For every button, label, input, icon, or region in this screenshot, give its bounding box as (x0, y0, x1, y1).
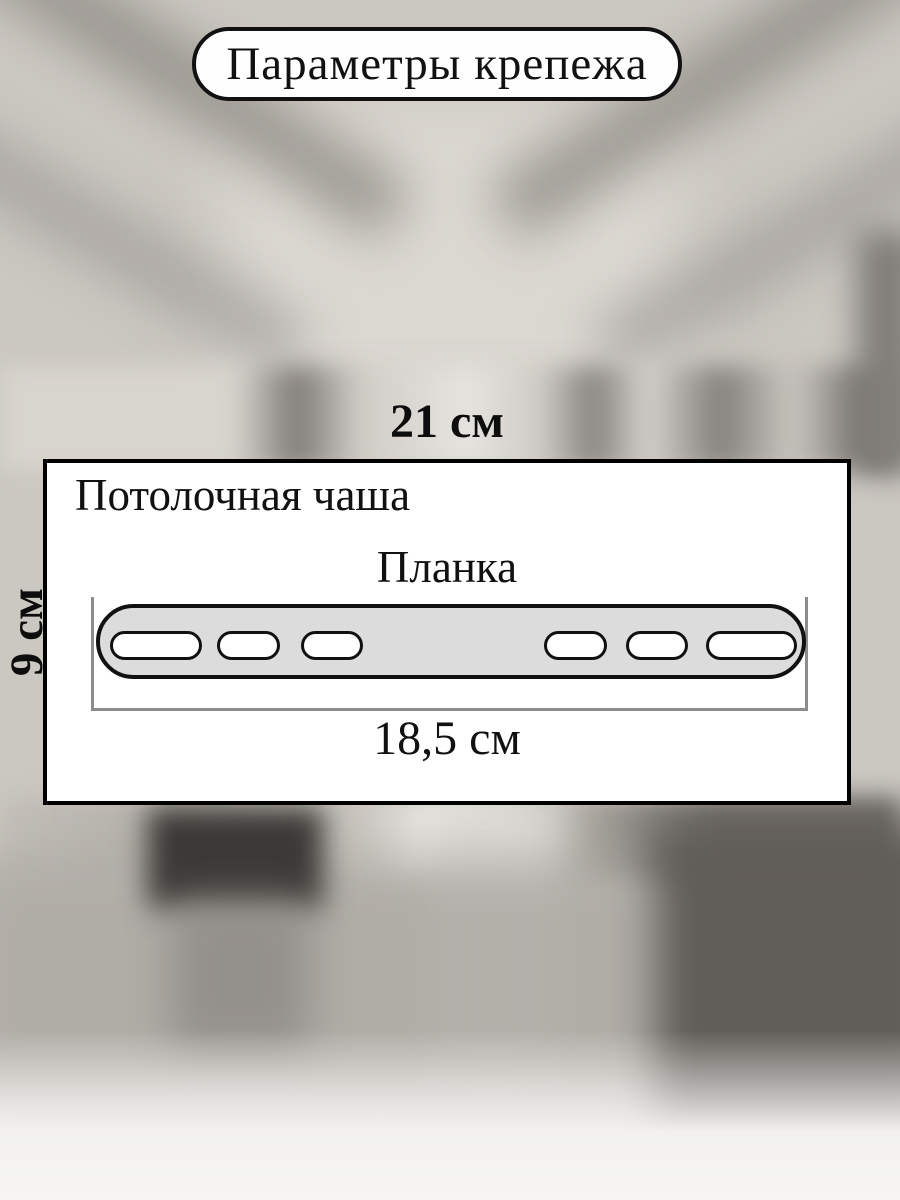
ceiling-cup-label: Потолочная чаша (75, 469, 410, 521)
background-wall-lower (0, 798, 900, 882)
plate-slot-1 (110, 631, 202, 660)
dimension-label-plank-width: 18,5 см (47, 711, 847, 766)
mounting-plate-drawing (96, 604, 806, 679)
background-table-base (170, 900, 310, 1050)
background-doorway (428, 800, 558, 1070)
background-ceiling-panel (220, 100, 680, 410)
page-title: Параметры крепежа (226, 37, 647, 91)
dimension-label-height: 9 см (0, 565, 52, 699)
plate-slot-6 (706, 631, 797, 660)
background-table (148, 808, 323, 908)
infographic-canvas: Параметры крепежа 21 см Потолочная чаша … (0, 0, 900, 1200)
plate-slot-5 (626, 631, 688, 660)
dimension-label-width: 21 см (297, 394, 597, 449)
plate-slot-3 (301, 631, 363, 660)
plate-slot-2 (217, 631, 280, 660)
background-sofa (652, 822, 900, 1200)
plank-label: Планка (47, 541, 847, 593)
background-ceiling-beam (590, 80, 900, 374)
plate-slot-4 (544, 631, 607, 660)
background-floor (0, 860, 660, 1090)
background-wall-shadow (856, 230, 900, 470)
diagram-panel: Потолочная чаша Планка 18,5 см (43, 459, 851, 805)
title-badge: Параметры крепежа (192, 27, 682, 101)
background-ceiling-beam (0, 80, 310, 374)
background-floor-highlight (0, 1030, 900, 1200)
